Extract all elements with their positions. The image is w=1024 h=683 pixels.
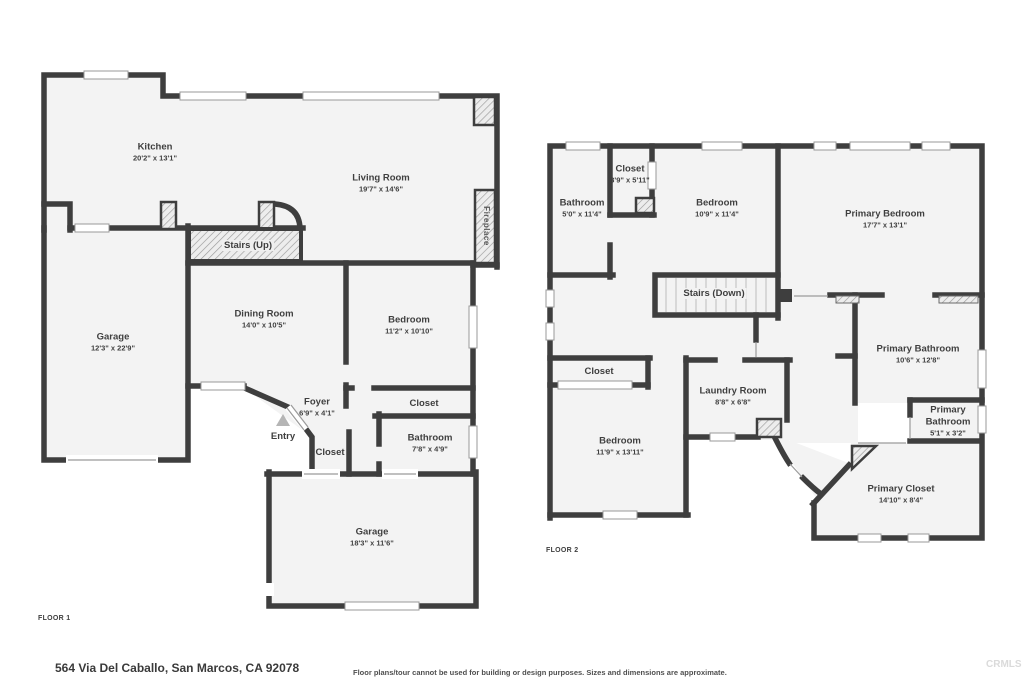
- room-label-bathroom-f2: Bathroom 5'0" x 11'4": [560, 197, 605, 218]
- room-dims: 19'7" x 14'6": [352, 184, 410, 193]
- closet-label-f2: Closet: [584, 360, 613, 380]
- property-address: 564 Via Del Caballo, San Marcos, CA 9207…: [55, 661, 299, 675]
- closet-label-hall: Closet: [409, 392, 438, 412]
- room-label-closet-top: Closet 3'9" x 5'11": [610, 163, 649, 184]
- floor2-plan: [546, 142, 986, 542]
- room-dims: 14'10" x 8'4": [867, 495, 934, 504]
- room-name: Closet: [610, 163, 649, 175]
- room-name: Dining Room: [234, 308, 293, 320]
- room-name: Laundry Room: [699, 385, 766, 397]
- fireplace-label: Fireplace: [481, 206, 491, 246]
- room-name: Primary Bedroom: [845, 208, 925, 220]
- vanity-hatch: [836, 296, 859, 303]
- room-dims: 6'9" x 4'1": [299, 408, 335, 417]
- room-label-living-room: Living Room 19'7" x 14'6": [352, 172, 410, 193]
- room-name: Bedroom: [596, 435, 643, 447]
- room-name: Primary Bathroom: [918, 404, 978, 428]
- floor2-tag: FLOOR 2: [546, 547, 578, 554]
- room-dims: 5'1" x 3'2": [918, 428, 978, 437]
- room-label-bedroom-f2-bottom: Bedroom 11'9" x 13'11": [596, 435, 643, 456]
- room-dims: 20'2" x 13'1": [133, 153, 177, 162]
- room-name: Bathroom: [408, 432, 453, 444]
- floorplan-page: Kitchen 20'2" x 13'1" Living Room 19'7" …: [0, 0, 1024, 683]
- room-name: Kitchen: [133, 141, 177, 153]
- room-name: Garage: [350, 526, 394, 538]
- room-name: Bedroom: [695, 197, 739, 209]
- stairs-down-label: Stairs (Down): [681, 282, 746, 302]
- room-name: Foyer: [299, 396, 335, 408]
- room-label-garage-left: Garage 12'3" x 22'9": [91, 331, 135, 352]
- room-name: Living Room: [352, 172, 410, 184]
- chimney-hatch: [474, 97, 495, 125]
- room-name: Primary Closet: [867, 483, 934, 495]
- wall-post: [259, 202, 274, 229]
- closet-label-foyer: Closet: [315, 441, 344, 461]
- stair-newel-post: [778, 289, 792, 302]
- crmls-watermark: CRMLS: [986, 659, 1022, 670]
- floor1-tag: FLOOR 1: [38, 615, 70, 622]
- corner-shelf-hatch: [757, 419, 781, 437]
- room-dims: 18'3" x 11'6": [350, 538, 394, 547]
- room-label-kitchen: Kitchen 20'2" x 13'1": [133, 141, 177, 162]
- room-dims: 12'3" x 22'9": [91, 343, 135, 352]
- closet-shelf-hatch: [636, 198, 654, 213]
- room-label-bedroom-f2-top: Bedroom 10'9" x 11'4": [695, 197, 739, 218]
- room-dims: 5'0" x 11'4": [560, 209, 605, 218]
- room-label-bathroom-f1: Bathroom 7'8" x 4'9": [408, 432, 453, 453]
- room-label-dining-room: Dining Room 14'0" x 10'5": [234, 308, 293, 329]
- room-label-primary-bathroom-small: Primary Bathroom 5'1" x 3'2": [918, 404, 978, 437]
- room-dims: 10'9" x 11'4": [695, 209, 739, 218]
- room-name: Bedroom: [385, 314, 433, 326]
- room-label-primary-closet: Primary Closet 14'10" x 8'4": [867, 483, 934, 504]
- room-label-laundry-room: Laundry Room 8'8" x 6'8": [699, 385, 766, 406]
- room-dims: 10'6" x 12'8": [877, 355, 960, 364]
- room-dims: 3'9" x 5'11": [610, 175, 649, 184]
- room-dims: 14'0" x 10'5": [234, 320, 293, 329]
- room-label-foyer: Foyer 6'9" x 4'1": [299, 396, 335, 417]
- room-label-primary-bathroom: Primary Bathroom 10'6" x 12'8": [877, 343, 960, 364]
- room-label-bedroom-f1: Bedroom 11'2" x 10'10": [385, 314, 433, 335]
- room-dims: 7'8" x 4'9": [408, 444, 453, 453]
- entry-label: Entry: [271, 425, 295, 445]
- stairs-up-label: Stairs (Up): [222, 234, 274, 254]
- disclaimer-text: Floor plans/tour cannot be used for buil…: [353, 668, 727, 677]
- room-name: Bathroom: [560, 197, 605, 209]
- vanity-hatch: [939, 296, 978, 303]
- room-label-primary-bedroom: Primary Bedroom 17'7" x 13'1": [845, 208, 925, 229]
- room-label-garage-bottom: Garage 18'3" x 11'6": [350, 526, 394, 547]
- room-dims: 11'2" x 10'10": [385, 326, 433, 335]
- room-dims: 11'9" x 13'11": [596, 447, 643, 456]
- floorplan-drawing: [0, 0, 1024, 683]
- room-dims: 17'7" x 13'1": [845, 220, 925, 229]
- wall-post: [161, 202, 176, 229]
- room-dims: 8'8" x 6'8": [699, 397, 766, 406]
- room-name: Garage: [91, 331, 135, 343]
- room-name: Primary Bathroom: [877, 343, 960, 355]
